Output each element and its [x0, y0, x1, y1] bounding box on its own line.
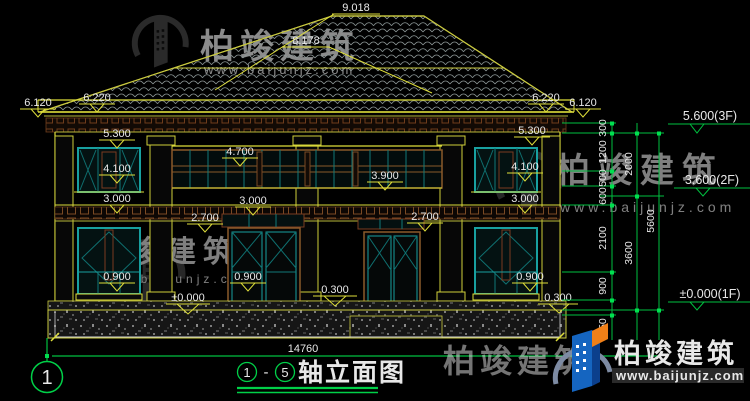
title-dash: -: [264, 364, 269, 381]
dim-right-4100: 4.100: [511, 161, 539, 173]
dim-right-3000: 3.000: [511, 193, 539, 205]
transom-left: [222, 214, 304, 227]
chain-5600: 5600: [645, 209, 657, 233]
chain-2100: 2100: [597, 226, 609, 250]
dim-left-5300: 5.300: [103, 128, 131, 140]
window-1f-left: [76, 228, 142, 300]
dim-center-4700: 4.700: [226, 146, 254, 158]
chain-900: 900: [597, 277, 609, 295]
title-text: 轴立面图: [298, 358, 406, 387]
axis-node: [45, 354, 49, 358]
chain-600: 600: [597, 187, 609, 205]
title-axis-start: 1: [243, 365, 250, 380]
brand-name: 柏竣建筑: [614, 338, 738, 369]
dim-right-5300: 5.300: [518, 125, 546, 137]
dim-center-0900: 0.900: [234, 271, 262, 283]
chain-3600: 3600: [623, 241, 635, 265]
chain-500: 500: [597, 169, 609, 187]
dim-right-eave-outer: 6.120: [569, 97, 597, 109]
dim-left-3000: 3.000: [103, 193, 131, 205]
dim-left-eave: 6.220: [83, 92, 111, 104]
level-3f: 5.600(3F): [683, 109, 737, 123]
dim-right-0300: 0.300: [544, 292, 572, 304]
title-axis-end: 5: [281, 365, 288, 380]
entry-step: [350, 316, 442, 338]
window-1f-right: [473, 228, 539, 300]
plinth: [48, 301, 566, 338]
dim-center-0300: 0.300: [321, 284, 349, 296]
level-2f: 3.600(2F): [685, 173, 739, 187]
axis-bubble-label: 1: [41, 367, 52, 389]
brand-watermark-faint: 柏竣建筑: [443, 343, 591, 379]
level-1f: ±0.000(1F): [679, 287, 740, 301]
dim-center-3000: 3.000: [239, 195, 267, 207]
dim-center-zero: ±0.000: [171, 292, 205, 304]
elevation-drawing-canvas: 柏竣建筑 www.baijunjz.com 柏竣建筑 www.baijunjz.…: [0, 0, 750, 401]
watermark-brand-text: 柏竣建筑: [443, 343, 591, 379]
dim-right-eave: 6.220: [532, 92, 560, 104]
dim-left-eave-outer: 6.120: [24, 97, 52, 109]
chain-300: 300: [597, 119, 609, 137]
chain-2000: 2000: [623, 152, 635, 176]
dim-center-3900: 3.900: [371, 170, 399, 182]
dim-center-2700-right: 2.700: [411, 211, 439, 223]
dim-left-4100: 4.100: [103, 163, 131, 175]
dim-center-2700-left: 2.700: [191, 212, 219, 224]
brand-url: www.baijunjz.com: [615, 368, 744, 383]
belt-course: [55, 205, 560, 221]
dim-right-0900: 0.900: [516, 271, 544, 283]
chain-1200: 1200: [597, 140, 609, 164]
dim-left-0900: 0.900: [103, 271, 131, 283]
dim-ridge: 9.018: [342, 2, 370, 14]
dim-overall-width: 14760: [288, 343, 319, 355]
dim-sub-ridge: 8.178: [292, 35, 320, 47]
logo-building: [572, 330, 592, 392]
